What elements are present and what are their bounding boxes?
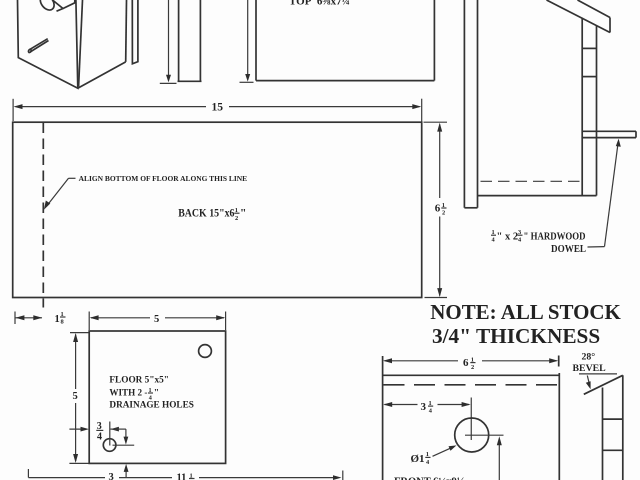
svg-text:BEVEL: BEVEL — [573, 363, 607, 374]
svg-text:15: 15 — [212, 102, 224, 114]
svg-text:Ø1: Ø1 — [411, 453, 425, 465]
svg-text:8: 8 — [61, 319, 64, 326]
svg-text:4: 4 — [97, 431, 102, 442]
svg-text:5: 5 — [73, 391, 78, 402]
svg-text:": " — [154, 387, 159, 398]
svg-text:BACK 15"x6: BACK 15"x6 — [178, 208, 235, 220]
svg-text:5: 5 — [154, 314, 159, 325]
svg-text:FLOOR 5"x5": FLOOR 5"x5" — [109, 374, 168, 385]
svg-text:ALIGN BOTTOM OF FLOOR ALONG TH: ALIGN BOTTOM OF FLOOR ALONG THIS LINE — [79, 174, 248, 183]
svg-text:3: 3 — [109, 472, 114, 480]
svg-text:" x 2: " x 2 — [497, 232, 519, 243]
svg-text:DRAINAGE HOLES: DRAINAGE HOLES — [109, 399, 193, 410]
svg-text:3: 3 — [421, 401, 427, 413]
svg-text:" HARDWOOD: " HARDWOOD — [524, 232, 586, 243]
svg-text:2: 2 — [442, 210, 445, 217]
svg-text:3/4" THICKNESS: 3/4" THICKNESS — [432, 324, 600, 348]
svg-text:FRONT 6½x9¼: FRONT 6½x9¼ — [394, 476, 465, 480]
svg-text:11: 11 — [177, 473, 187, 480]
svg-text:NOTE: ALL STOCK: NOTE: ALL STOCK — [430, 300, 621, 324]
svg-text:": " — [240, 208, 246, 220]
svg-text:DOWEL: DOWEL — [551, 244, 586, 255]
svg-text:28°: 28° — [582, 351, 596, 362]
svg-text:2: 2 — [235, 215, 238, 222]
svg-text:1: 1 — [55, 314, 60, 325]
svg-text:WITH 2 -: WITH 2 - — [109, 387, 147, 398]
svg-text:6: 6 — [435, 203, 441, 215]
svg-text:2: 2 — [471, 364, 474, 371]
svg-text:TOP 6⅝x7¼: TOP 6⅝x7¼ — [289, 0, 350, 7]
svg-text:6: 6 — [463, 357, 469, 369]
